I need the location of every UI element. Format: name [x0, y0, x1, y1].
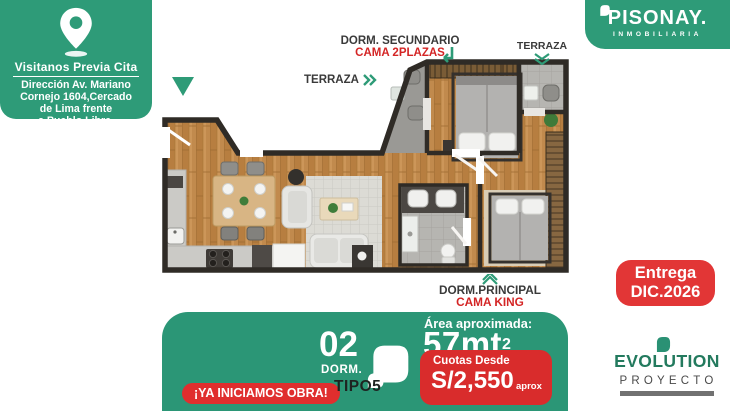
label-dorm-secundario: DORM. SECUNDARIO CAMA 2PLAZAS — [334, 35, 466, 59]
unit-type: TIPO5 — [334, 378, 381, 396]
project-subtitle: PROYECTO — [611, 375, 726, 387]
cama-principal-text: CAMA KING — [424, 297, 556, 309]
terraza-left-text: TERRAZA — [304, 74, 359, 86]
delivery-line2: DIC.2026 — [616, 283, 715, 302]
delivery-line1: Entrega — [616, 264, 715, 283]
cta-button[interactable]: ¡YA INICIAMOS OBRA! — [182, 383, 340, 404]
address-line: Cornejo 1604,Cercado — [0, 92, 152, 104]
project-logo: EVOLUTION PROYECTO — [608, 336, 726, 396]
delivery-badge: Entrega DIC.2026 — [616, 260, 715, 306]
visit-title: Visitanos Previa Cita — [13, 60, 140, 77]
label-terraza-left: TERRAZA — [304, 74, 378, 86]
brand-tagline: INMOBILIARIA — [585, 31, 730, 38]
price-label: Cuotas Desde — [433, 355, 510, 367]
cama-secundario-text: CAMA 2PLAZAS — [334, 47, 466, 59]
real-estate-flyer: Visitanos Previa Cita Dirección Av. Mari… — [0, 0, 730, 411]
entrance-arrow-icon — [172, 77, 194, 96]
visit-card: Visitanos Previa Cita Dirección Av. Mari… — [0, 0, 152, 119]
terraza-right-text: TERRAZA — [514, 40, 570, 52]
project-name: EVOLUTION — [608, 351, 726, 372]
logo-underline-bar — [620, 391, 714, 396]
label-terraza-right: TERRAZA — [514, 40, 570, 65]
price-suffix: aprox — [516, 381, 542, 392]
brand-name-text: PISONAY. — [608, 7, 708, 29]
dorm-secundario-text: DORM. SECUNDARIO — [334, 35, 466, 47]
price-panel: Cuotas Desde S/2,550 aprox — [420, 350, 552, 405]
price-value: S/2,550 — [431, 367, 514, 395]
visit-address: Dirección Av. Mariano Cornejo 1604,Cerca… — [0, 80, 152, 127]
label-dorm-principal: DORM.PRINCIPAL CAMA KING — [424, 273, 556, 309]
address-line: a Pueblo Libre. — [0, 116, 152, 128]
offer-panel: ¡YA INICIAMOS OBRA! 02 DORM. TIPO5 Área … — [162, 312, 568, 411]
unit-label: DORM. — [321, 364, 362, 376]
brand-logo: PISONAY. — [608, 7, 708, 30]
chevron-down-icon — [533, 53, 551, 65]
location-pin-icon — [57, 6, 95, 58]
address-line: de Lima frente — [0, 104, 152, 116]
chevron-right-icon — [362, 74, 378, 86]
unit-number: 02 — [319, 329, 358, 361]
brand-card: PISONAY. INMOBILIARIA — [585, 0, 730, 49]
leaf-icon — [599, 4, 611, 17]
